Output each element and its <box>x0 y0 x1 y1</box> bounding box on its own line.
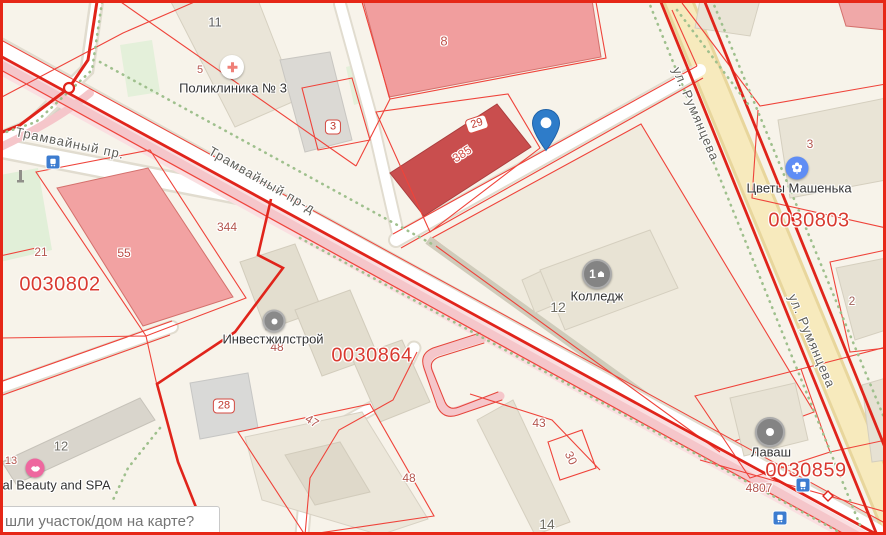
parcel-number: 5 <box>197 64 203 76</box>
map-pin[interactable] <box>530 108 562 157</box>
quarter-number: 0030803 <box>768 210 849 233</box>
flower-shop-icon[interactable] <box>786 157 809 180</box>
house-number-pill: 3 <box>325 120 341 135</box>
tram-stop-icon[interactable] <box>796 478 811 493</box>
parcel-number: 3 <box>807 137 814 151</box>
search-input[interactable] <box>0 507 219 535</box>
quarter-number: 0030864 <box>331 345 412 368</box>
tram-stop-icon[interactable] <box>46 155 61 170</box>
parcel-number: 8 <box>440 34 447 49</box>
building-number: 12 <box>550 299 566 315</box>
parcel-number: 43 <box>532 416 545 430</box>
college-icon-number: 1 <box>589 268 596 280</box>
poi-label-flowers: Цветы Машенька <box>746 181 851 196</box>
search-box <box>0 506 220 535</box>
map-canvas[interactable]: Трамвайный пр. Трамвайный пр-д ул. Румян… <box>0 0 886 535</box>
college-icon[interactable]: 1 <box>582 259 612 289</box>
poi-label-polyclinic: Поликлиника № 3 <box>179 81 287 96</box>
parcel-number: 2 <box>849 294 856 308</box>
quarter-number: 0030802 <box>19 274 100 297</box>
polyclinic-icon[interactable] <box>220 55 244 79</box>
beauty-spa-icon[interactable] <box>26 459 45 478</box>
parcel-number: 48 <box>402 471 415 485</box>
invest-company-icon[interactable] <box>263 310 286 333</box>
poi-label-college: Колледж <box>571 289 624 304</box>
tram-stop-icon[interactable] <box>773 511 788 526</box>
building-number: 12 <box>54 439 68 454</box>
boundary-node-marker <box>64 83 74 93</box>
poi-label-invest: Инвестжилстрой <box>222 332 323 347</box>
parcel-number: 55 <box>117 246 130 260</box>
parcel-number: 13 <box>5 455 17 467</box>
building-number: 14 <box>539 516 555 532</box>
parcel-number: 344 <box>217 220 237 234</box>
poi-label-beauty: cal Beauty and SPA <box>0 478 111 493</box>
parcel-number: 21 <box>34 245 47 259</box>
building-number: 11 <box>208 15 222 30</box>
parcel-number: 4807 <box>746 481 773 495</box>
house-number-pill: 28 <box>213 399 235 414</box>
lavash-icon[interactable] <box>755 417 785 447</box>
